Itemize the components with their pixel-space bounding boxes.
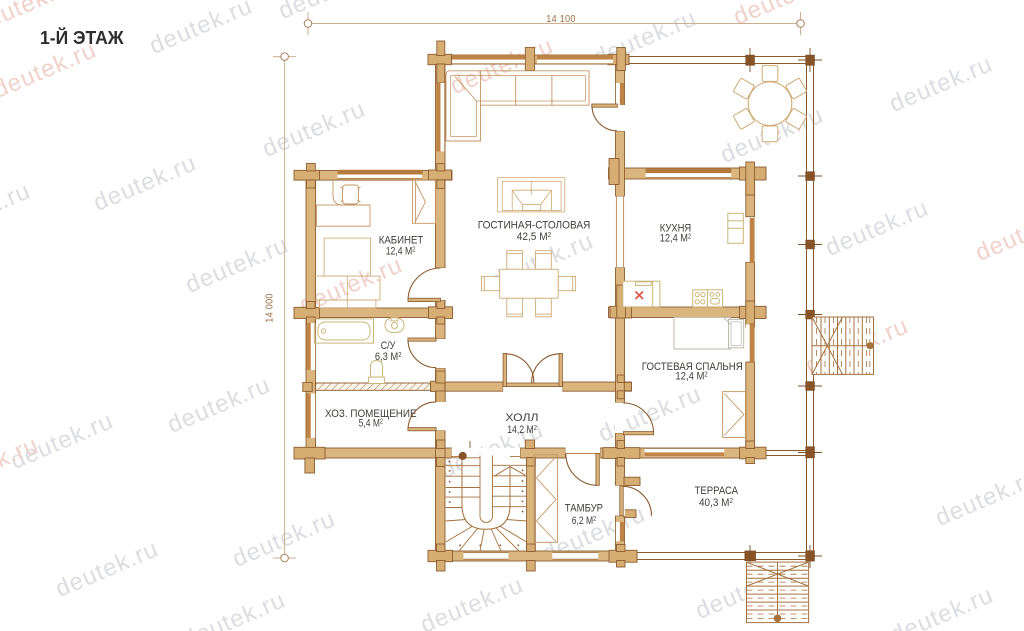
svg-text:14 100: 14 100 bbox=[546, 13, 575, 25]
svg-text:6,2 М2: 6,2 М2 bbox=[572, 515, 596, 527]
svg-text:12,4 М2: 12,4 М2 bbox=[660, 232, 691, 244]
svg-text:14,2 М2: 14,2 М2 bbox=[507, 424, 537, 436]
svg-text:6,3 М2: 6,3 М2 bbox=[375, 351, 402, 363]
svg-text:ГОСТИНАЯ-СТОЛОВАЯ: ГОСТИНАЯ-СТОЛОВАЯ bbox=[478, 219, 591, 231]
svg-text:ХОЛЛ: ХОЛЛ bbox=[505, 412, 538, 424]
svg-text:5,4 М2: 5,4 М2 bbox=[359, 418, 383, 430]
svg-text:12,4 М2: 12,4 М2 bbox=[386, 246, 416, 258]
svg-text:40,3 М2: 40,3 М2 bbox=[699, 497, 733, 509]
svg-text:ТАМБУР: ТАМБУР bbox=[565, 503, 603, 515]
svg-text:12,4 М2: 12,4 М2 bbox=[675, 371, 707, 383]
svg-text:14 000: 14 000 bbox=[264, 293, 276, 322]
svg-text:42,5 М2: 42,5 М2 bbox=[517, 231, 551, 243]
svg-text:ТЕРРАСА: ТЕРРАСА bbox=[695, 485, 739, 497]
svg-text:1-Й ЭТАЖ: 1-Й ЭТАЖ bbox=[40, 27, 124, 48]
